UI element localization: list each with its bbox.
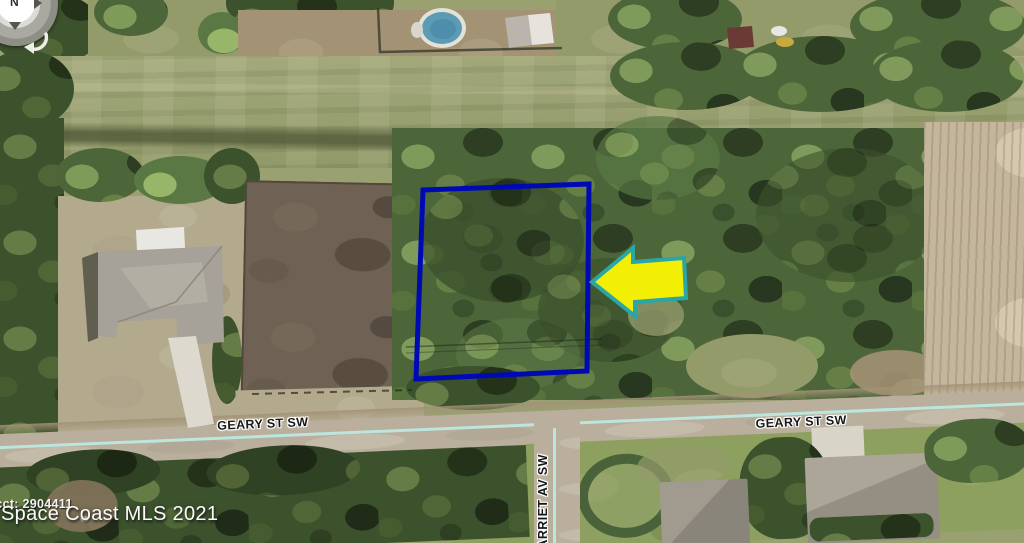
pan-down-icon[interactable] [9, 22, 21, 30]
house-roof [659, 479, 750, 543]
woods-below-road [0, 444, 549, 543]
tree-line-west [0, 118, 64, 450]
tree-canopy [870, 40, 1024, 112]
shrub-row [56, 148, 144, 202]
dirt-backyard [238, 10, 568, 58]
street-label-harriet: HARRIET AV SW [536, 426, 550, 543]
grass-clearing [628, 294, 684, 336]
tree-canopy [596, 116, 720, 200]
tree-canopy [756, 148, 940, 282]
plowed-field [924, 122, 1024, 398]
road-centerline [553, 428, 556, 543]
lawns-southeast [526, 423, 1024, 543]
north-label: N [10, 0, 19, 9]
pan-right-icon[interactable] [34, 0, 42, 9]
aerial-map-view: GEARY ST SW GEARY ST SW HARRIET AV SW [0, 0, 1024, 543]
tree-canopy [923, 417, 1024, 485]
grass-clearing [686, 334, 818, 398]
watermark-mls: Space Coast MLS 2021 [1, 503, 218, 526]
rotate-arrow-icon[interactable] [20, 30, 50, 58]
